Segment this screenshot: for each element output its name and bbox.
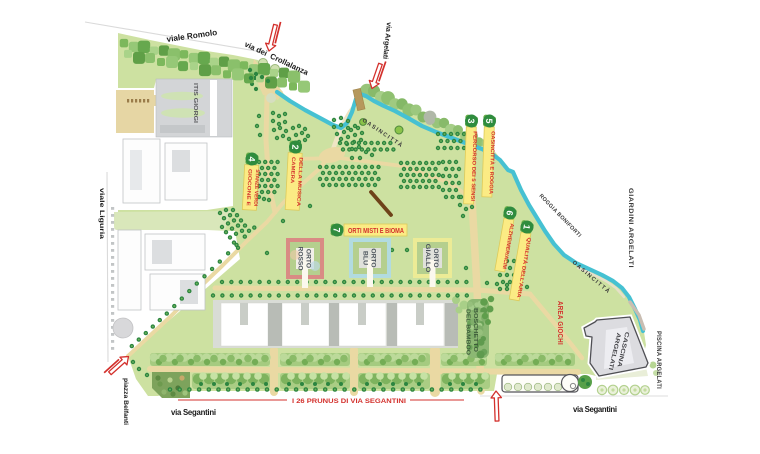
svg-text:piazza Belfanti: piazza Belfanti — [122, 378, 129, 425]
svg-text:ORTO: ORTO — [305, 249, 311, 269]
svg-text:2: 2 — [290, 144, 300, 150]
svg-text:ROSSO: ROSSO — [297, 247, 303, 271]
svg-text:PISCINA ARGELATI: PISCINA ARGELATI — [655, 331, 662, 389]
svg-text:ORTO: ORTO — [370, 248, 376, 268]
svg-text:4: 4 — [247, 156, 257, 162]
svg-text:viale Liguria: viale Liguria — [98, 188, 105, 240]
svg-text:via Segantini: via Segantini — [171, 408, 216, 417]
svg-text:ITIS GIORGI: ITIS GIORGI — [192, 83, 198, 124]
svg-text:ORTI MISTI E BIOMA: ORTI MISTI E BIOMA — [348, 228, 404, 235]
svg-text:BLU: BLU — [362, 251, 368, 265]
svg-text:I 26 PRUNUS DI VIA SEGANTINI: I 26 PRUNUS DI VIA SEGANTINI — [292, 398, 406, 405]
svg-text:GIALLO: GIALLO — [424, 244, 430, 273]
svg-text:7: 7 — [332, 227, 342, 232]
svg-text:DEL BAMBOO: DEL BAMBOO — [465, 309, 471, 355]
svg-text:BOSCHETTO: BOSCHETTO — [472, 308, 478, 352]
svg-text:via Segantini: via Segantini — [573, 405, 617, 414]
svg-text:3: 3 — [466, 118, 476, 123]
svg-text:5: 5 — [484, 118, 494, 123]
svg-text:ORTO: ORTO — [432, 248, 438, 268]
svg-text:AREA GIOCHI: AREA GIOCHI — [556, 301, 563, 345]
svg-text:GIARDINI ARGELATI: GIARDINI ARGELATI — [627, 188, 634, 268]
